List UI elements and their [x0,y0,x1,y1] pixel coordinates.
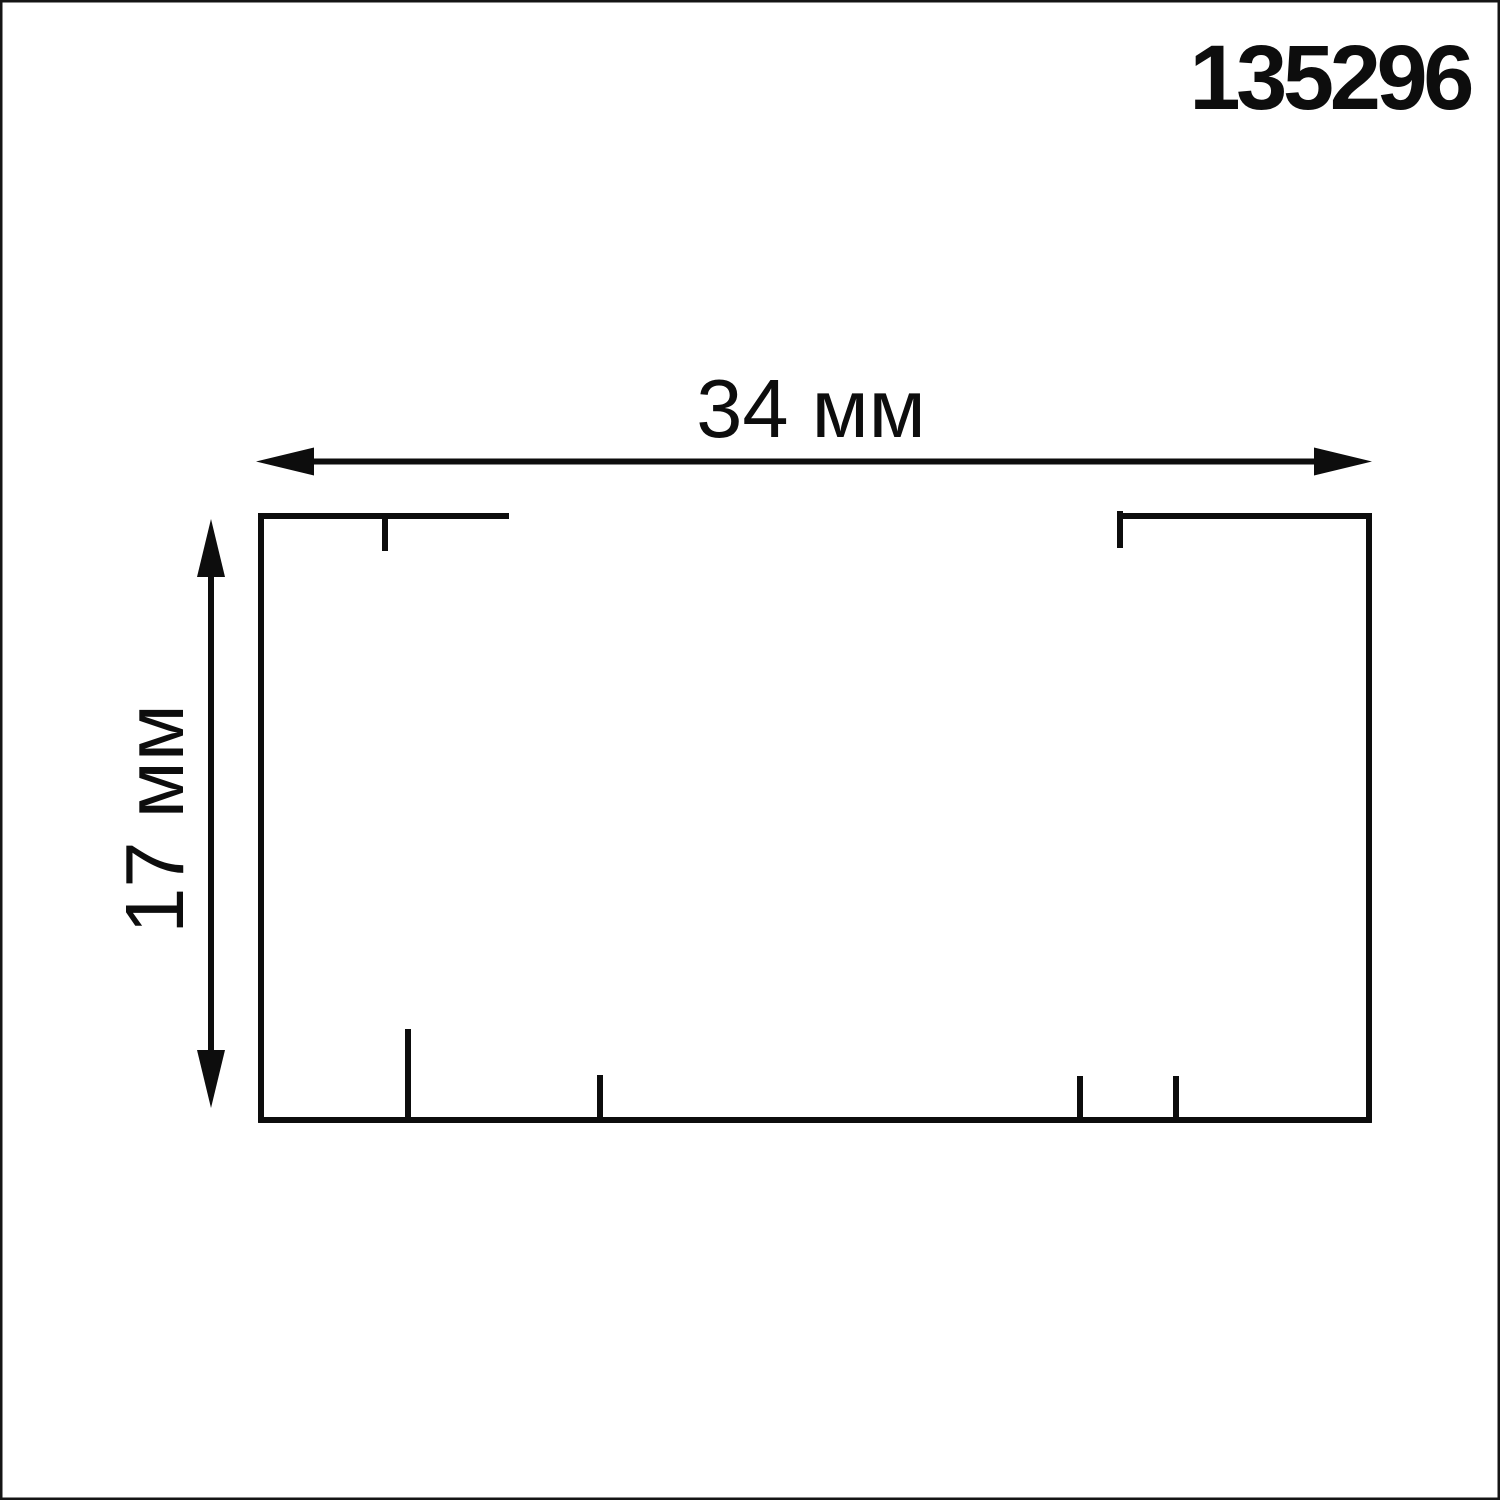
svg-text:34 мм: 34 мм [696,362,926,455]
svg-text:135296: 135296 [1189,27,1471,129]
svg-text:17 мм: 17 мм [108,704,201,934]
